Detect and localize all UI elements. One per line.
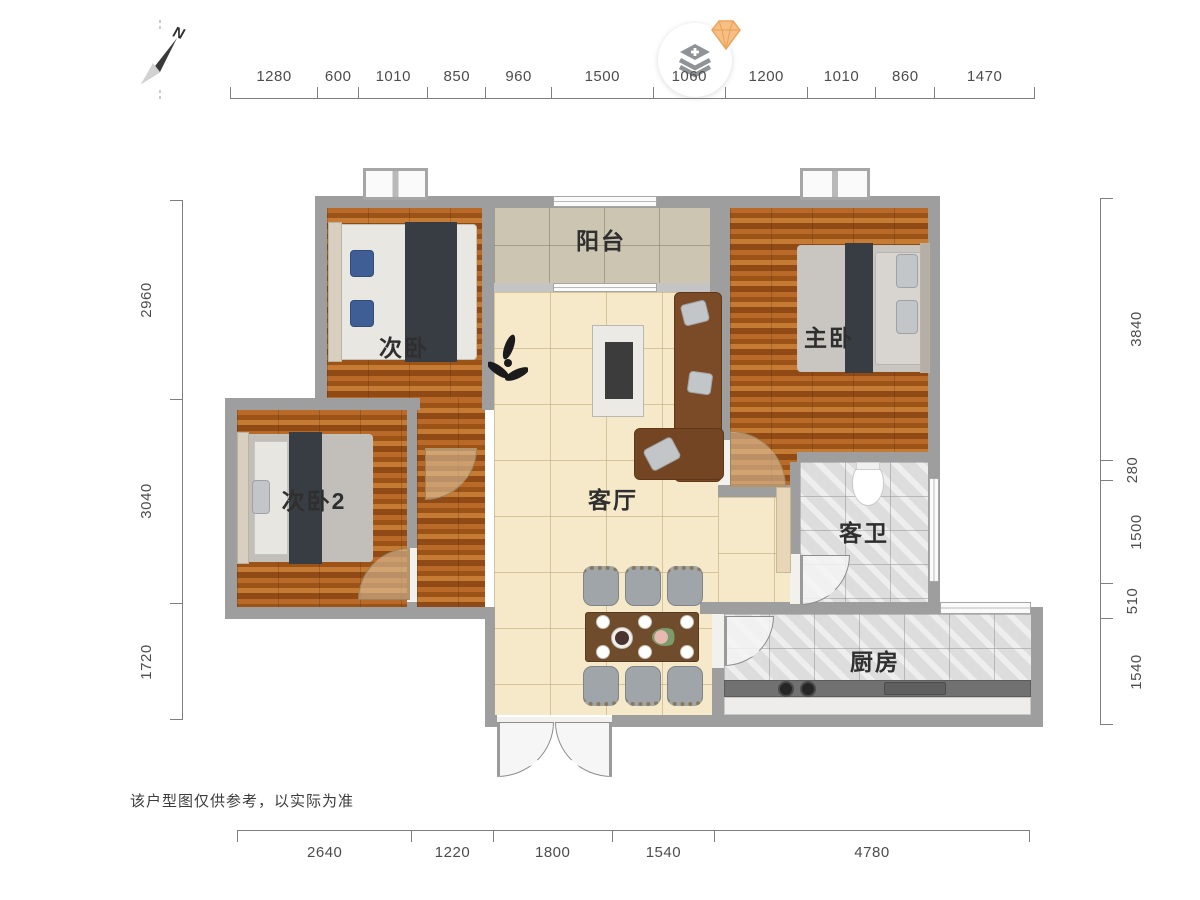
plate <box>638 645 652 659</box>
kitchen-counter <box>724 680 1031 697</box>
balcony-top-window <box>553 196 657 207</box>
hall-cabinet <box>776 487 791 573</box>
dining-chair <box>583 666 619 706</box>
pillow <box>896 254 918 288</box>
dimension-label: 280 <box>1124 457 1141 484</box>
dimension-segment: 1500 <box>1101 480 1113 583</box>
floorplan-canvas: N 12806001010850960150010601200101086014… <box>0 0 1200 900</box>
dimension-segment: 4780 <box>714 831 1030 842</box>
room-label-balcony: 阳台 <box>576 222 626 256</box>
dimension-label: 1500 <box>585 68 620 85</box>
wall-bathroom-left <box>790 462 800 554</box>
dining-chair <box>667 566 703 606</box>
toilet-tank <box>856 462 880 470</box>
wall-dining-left <box>485 607 495 727</box>
dimension-label: 1010 <box>824 68 859 85</box>
wall-kitchen-bottom <box>718 715 1043 727</box>
dimension-segment: 1470 <box>934 87 1035 98</box>
dimension-label: 4780 <box>854 844 889 861</box>
dining-chair <box>625 566 661 606</box>
dimension-segment: 510 <box>1101 583 1113 619</box>
dimension-segment: 1720 <box>170 603 182 720</box>
dimension-label: 1220 <box>435 844 470 861</box>
dimension-label: 1720 <box>138 644 155 679</box>
bottom-dimension-ruler: 26401220180015404780 <box>237 830 1030 873</box>
ceiling-fan-icon <box>488 334 528 388</box>
room-label-bedroom-3: 次卧2 <box>282 482 347 516</box>
wall-left-upper <box>315 196 327 410</box>
wall-bedroom3-top <box>225 398 420 410</box>
dimension-segment: 860 <box>875 87 934 98</box>
dimension-segment: 1500 <box>551 87 653 98</box>
dining-chair <box>667 666 703 706</box>
dimension-segment: 600 <box>317 87 358 98</box>
dimension-segment: 1200 <box>725 87 807 98</box>
dimension-label: 1500 <box>1128 514 1145 549</box>
dimension-label: 3840 <box>1128 312 1145 347</box>
bed-headboard <box>328 222 342 362</box>
room-label-bedroom-2: 次卧 <box>379 329 429 363</box>
bed-runner <box>845 243 873 373</box>
bay-window-master <box>800 168 870 200</box>
dimension-segment: 1010 <box>358 87 427 98</box>
dimension-label: 1540 <box>646 844 681 861</box>
dimension-segment: 1540 <box>612 831 714 842</box>
stove-burner <box>800 681 816 697</box>
threshold-kitchen-door <box>712 614 724 668</box>
right-dimension-ruler: 384028015005101540 <box>1100 198 1137 725</box>
disclaimer-text: 该户型图仅供参考，以实际为准 <box>130 790 354 811</box>
dimension-segment: 2960 <box>170 200 182 399</box>
compass-n-label: N <box>171 24 188 44</box>
dimension-segment: 1800 <box>493 831 612 842</box>
bay-window-bedroom-2 <box>363 168 428 200</box>
dimension-segment: 1540 <box>1101 618 1113 725</box>
dimension-label: 960 <box>505 68 532 85</box>
wall-bathroom-top <box>797 452 933 462</box>
dimension-segment: 1010 <box>807 87 876 98</box>
dimension-label: 1800 <box>535 844 570 861</box>
table-flowers <box>652 628 678 646</box>
bed-headboard <box>237 432 249 564</box>
plate <box>596 645 610 659</box>
wall-bottom-west <box>485 715 497 727</box>
dimension-label: 1200 <box>749 68 784 85</box>
plate <box>680 615 694 629</box>
threshold-bathroom-door <box>790 554 800 604</box>
room-label-master-bedroom: 主卧 <box>804 319 854 353</box>
dimension-label: 1540 <box>1128 654 1145 689</box>
dimension-label: 860 <box>892 68 919 85</box>
serving-dish-food <box>615 631 629 645</box>
bed-headboard <box>920 243 930 373</box>
dimension-label: 1060 <box>672 68 707 85</box>
bathroom-window <box>929 478 939 582</box>
pillow <box>896 300 918 334</box>
dimension-label: 1470 <box>967 68 1002 85</box>
kitchen-counter-front <box>724 697 1031 715</box>
dimension-segment: 280 <box>1101 460 1113 480</box>
dimension-segment: 3840 <box>1101 198 1113 460</box>
entrance-door-left <box>497 722 554 777</box>
dimension-label: 1280 <box>256 68 291 85</box>
dimension-label: 510 <box>1124 588 1141 615</box>
dimension-segment: 850 <box>427 87 485 98</box>
pillow <box>252 480 270 514</box>
compass-north-icon: N <box>130 18 194 102</box>
room-label-living-room: 客厅 <box>588 481 638 515</box>
dimension-label: 1010 <box>376 68 411 85</box>
dimension-label: 3040 <box>138 484 155 519</box>
plate <box>596 615 610 629</box>
pillow <box>350 300 374 327</box>
plate <box>680 645 694 659</box>
wall-bedroom3-bottom <box>225 607 495 619</box>
dimension-segment: 1060 <box>653 87 725 98</box>
wall-kitchen-left-lower <box>712 668 724 717</box>
wall-bathroom-bottom <box>700 602 940 614</box>
dimension-segment: 1220 <box>411 831 492 842</box>
room-label-guest-bathroom: 客卫 <box>839 514 889 548</box>
wall-kitchen-left-upper <box>712 607 724 614</box>
pillow <box>350 250 374 277</box>
room-label-kitchen: 厨房 <box>850 643 900 677</box>
top-dimension-ruler: 1280600101085096015001060120010108601470 <box>230 56 1035 99</box>
floor-hallway <box>417 398 485 607</box>
dimension-segment: 3040 <box>170 399 182 603</box>
kitchen-window <box>940 602 1031 614</box>
left-dimension-ruler: 296030401720 <box>146 200 183 720</box>
tv <box>605 342 633 399</box>
diamond-icon <box>710 18 742 52</box>
stove-burner <box>778 681 794 697</box>
dimension-segment: 2640 <box>237 831 411 842</box>
dimension-label: 600 <box>325 68 352 85</box>
plate <box>638 615 652 629</box>
dimension-segment: 1280 <box>230 87 317 98</box>
balcony-sliding-door <box>553 283 657 292</box>
dining-chair <box>625 666 661 706</box>
dimension-label: 2640 <box>307 844 342 861</box>
dining-chair <box>583 566 619 606</box>
dimension-segment: 960 <box>485 87 551 98</box>
dimension-label: 850 <box>444 68 471 85</box>
wall-left-lower <box>225 398 237 619</box>
entrance-door-right <box>555 722 612 777</box>
wall-bottom-center <box>612 715 718 727</box>
wall-kitchen-right <box>1031 607 1043 727</box>
dimension-label: 2960 <box>138 282 155 317</box>
kitchen-sink <box>884 682 946 695</box>
sofa-pillow <box>687 370 714 395</box>
